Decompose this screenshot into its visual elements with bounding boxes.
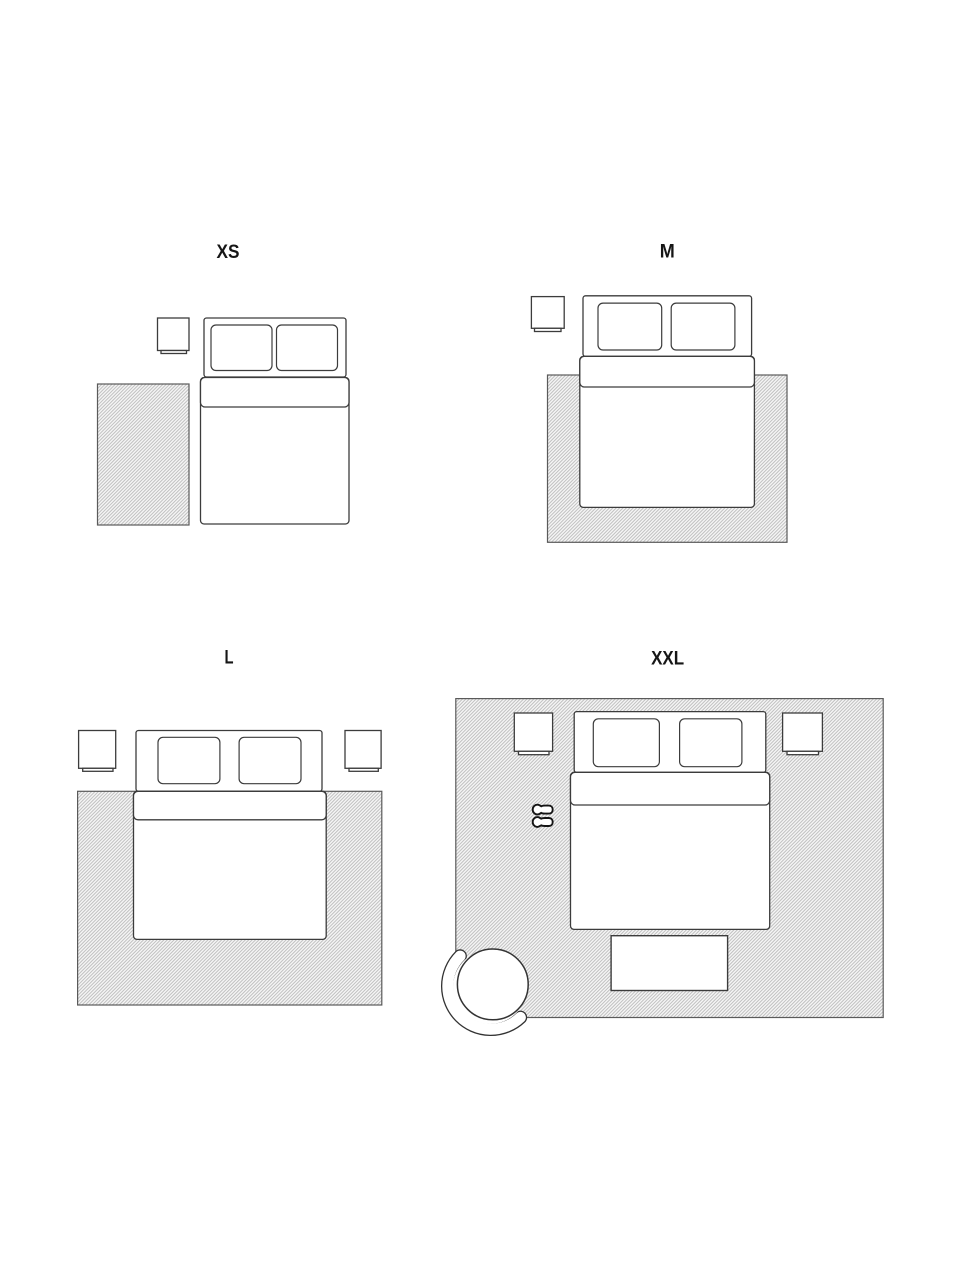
- svg-text:L: L: [225, 648, 234, 669]
- svg-text:XS: XS: [217, 242, 240, 263]
- svg-text:XXL: XXL: [651, 648, 684, 669]
- svg-text:M: M: [660, 242, 675, 263]
